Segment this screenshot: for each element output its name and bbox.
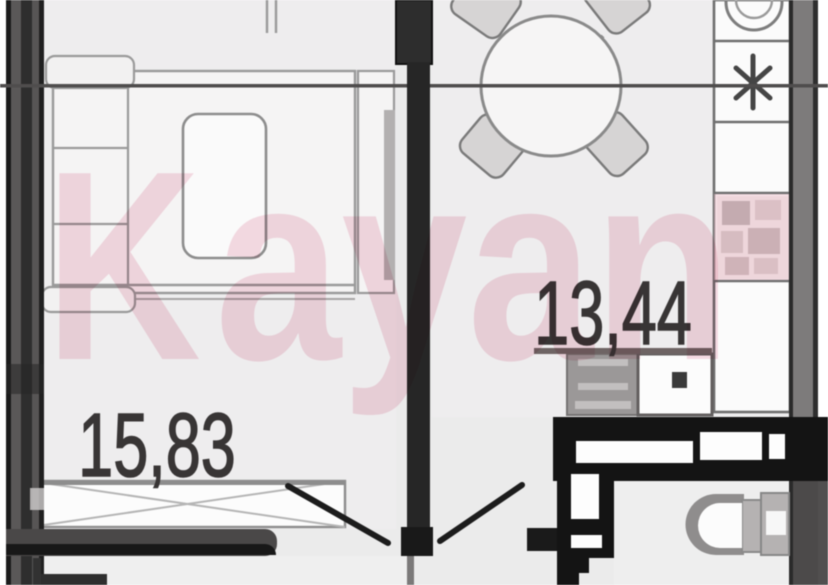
svg-text:13,44: 13,44 [534,264,692,364]
svg-text:15,83: 15,83 [78,396,236,496]
